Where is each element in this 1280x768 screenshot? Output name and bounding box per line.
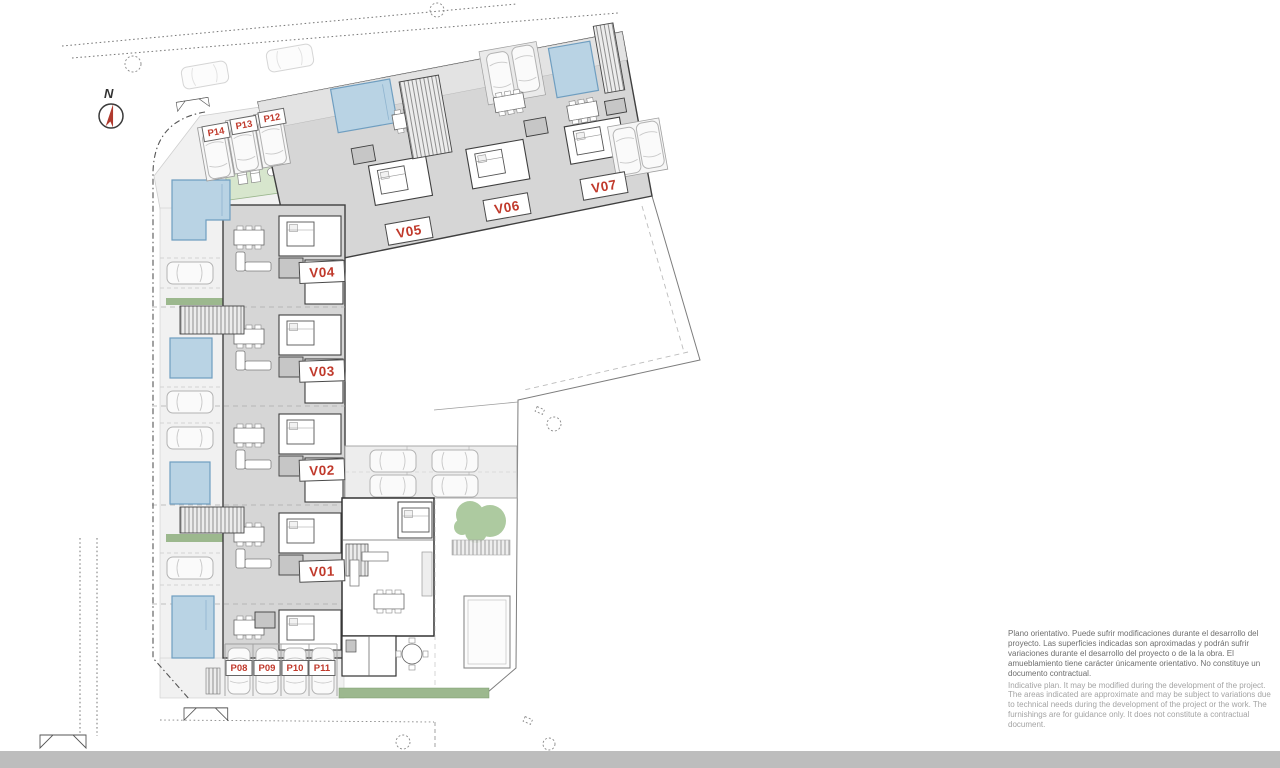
- unit-label-v01: V01: [299, 559, 346, 583]
- unit-label-v04: V04: [299, 260, 346, 284]
- unit-label-v06: V06: [482, 192, 531, 222]
- unit-label-v02: V02: [299, 458, 346, 482]
- north-label: N: [104, 86, 113, 101]
- parking-label-p14: P14: [201, 122, 230, 142]
- disclaimer-english: Indicative plan. It may be modified duri…: [1008, 681, 1271, 731]
- parking-label-p12: P12: [257, 108, 286, 128]
- parking-label-p11: P11: [309, 660, 336, 676]
- parking-label-p10: P10: [282, 660, 309, 676]
- parking-label-p13: P13: [229, 115, 258, 135]
- unit-label-v07: V07: [579, 171, 628, 201]
- unit-label-v03: V03: [299, 359, 346, 383]
- site-plan-page: N V01 V02 V03 V04 V05 V06 V07 P08 P09 P1…: [0, 0, 1280, 768]
- parking-label-p08: P08: [226, 660, 253, 676]
- disclaimer-spanish: Plano orientativo. Puede sufrir modifica…: [1008, 629, 1271, 679]
- disclaimer-block: Plano orientativo. Puede sufrir modifica…: [1008, 629, 1271, 732]
- parking-label-p09: P09: [254, 660, 281, 676]
- unit-label-v05: V05: [384, 216, 433, 246]
